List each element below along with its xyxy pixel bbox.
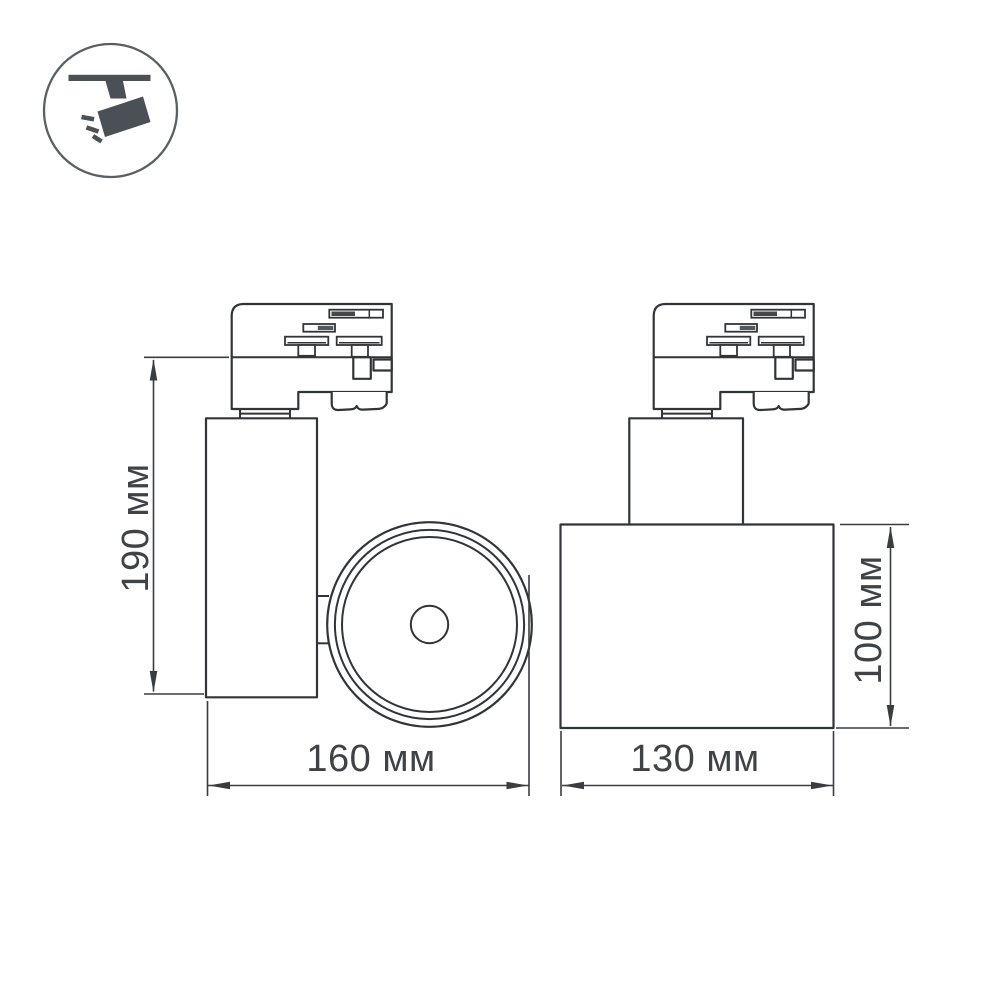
side-height-label: 190 мм [115, 463, 157, 592]
arrowhead-up [887, 527, 895, 549]
track-adapter [654, 304, 814, 418]
dimension-height-front: 100 мм [836, 525, 909, 729]
front-width-label: 130 мм [630, 738, 759, 780]
ceiling-track-icon [69, 75, 151, 81]
arrowhead-down [887, 705, 895, 727]
lamp-stem [629, 418, 743, 524]
lens-face [327, 522, 532, 727]
dimension-width-front: 130 мм [561, 731, 834, 796]
technical-drawing-page: 190 мм 160 мм 100 мм [0, 0, 1000, 1000]
arrowhead-right [811, 782, 833, 790]
dimension-drawing-canvas: 190 мм 160 мм 100 мм [0, 0, 1000, 1000]
lamp-housing-front [561, 525, 834, 729]
lamp-housing-side [206, 418, 317, 697]
arrowhead-right [507, 782, 529, 790]
front-height-label: 100 мм [848, 555, 890, 684]
arrowhead-left [209, 782, 231, 790]
arrowhead-up [150, 359, 158, 381]
arrowhead-left [563, 782, 585, 790]
side-width-label: 160 мм [306, 738, 435, 780]
product-icon [44, 44, 177, 177]
side-view-drawing: 190 мм 160 мм [115, 304, 532, 796]
arrowhead-down [150, 671, 158, 693]
track-adapter [232, 304, 392, 418]
front-view-drawing: 100 мм 130 мм [561, 304, 910, 796]
